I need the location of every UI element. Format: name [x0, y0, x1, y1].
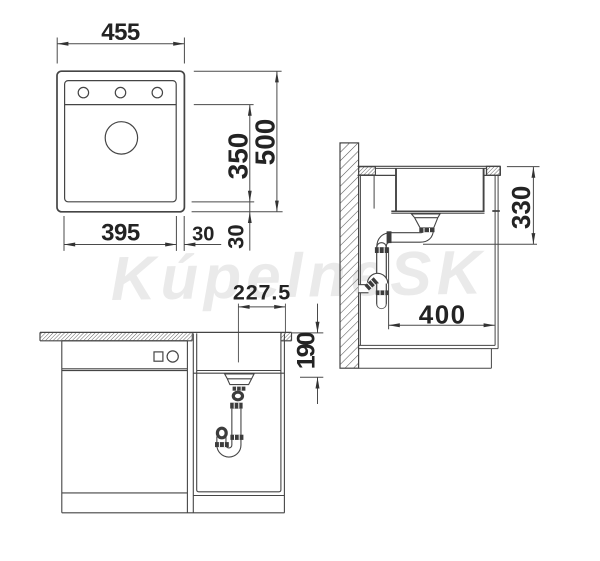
svg-text:400: 400 — [419, 299, 467, 329]
svg-text:395: 395 — [101, 219, 140, 246]
svg-text:500: 500 — [249, 119, 280, 166]
svg-text:227.5: 227.5 — [233, 280, 291, 304]
svg-text:190: 190 — [293, 332, 321, 369]
svg-text:30: 30 — [192, 224, 214, 246]
svg-text:30: 30 — [224, 224, 249, 248]
svg-text:350: 350 — [222, 133, 253, 180]
svg-text:330: 330 — [506, 186, 536, 229]
svg-text:455: 455 — [101, 19, 140, 46]
